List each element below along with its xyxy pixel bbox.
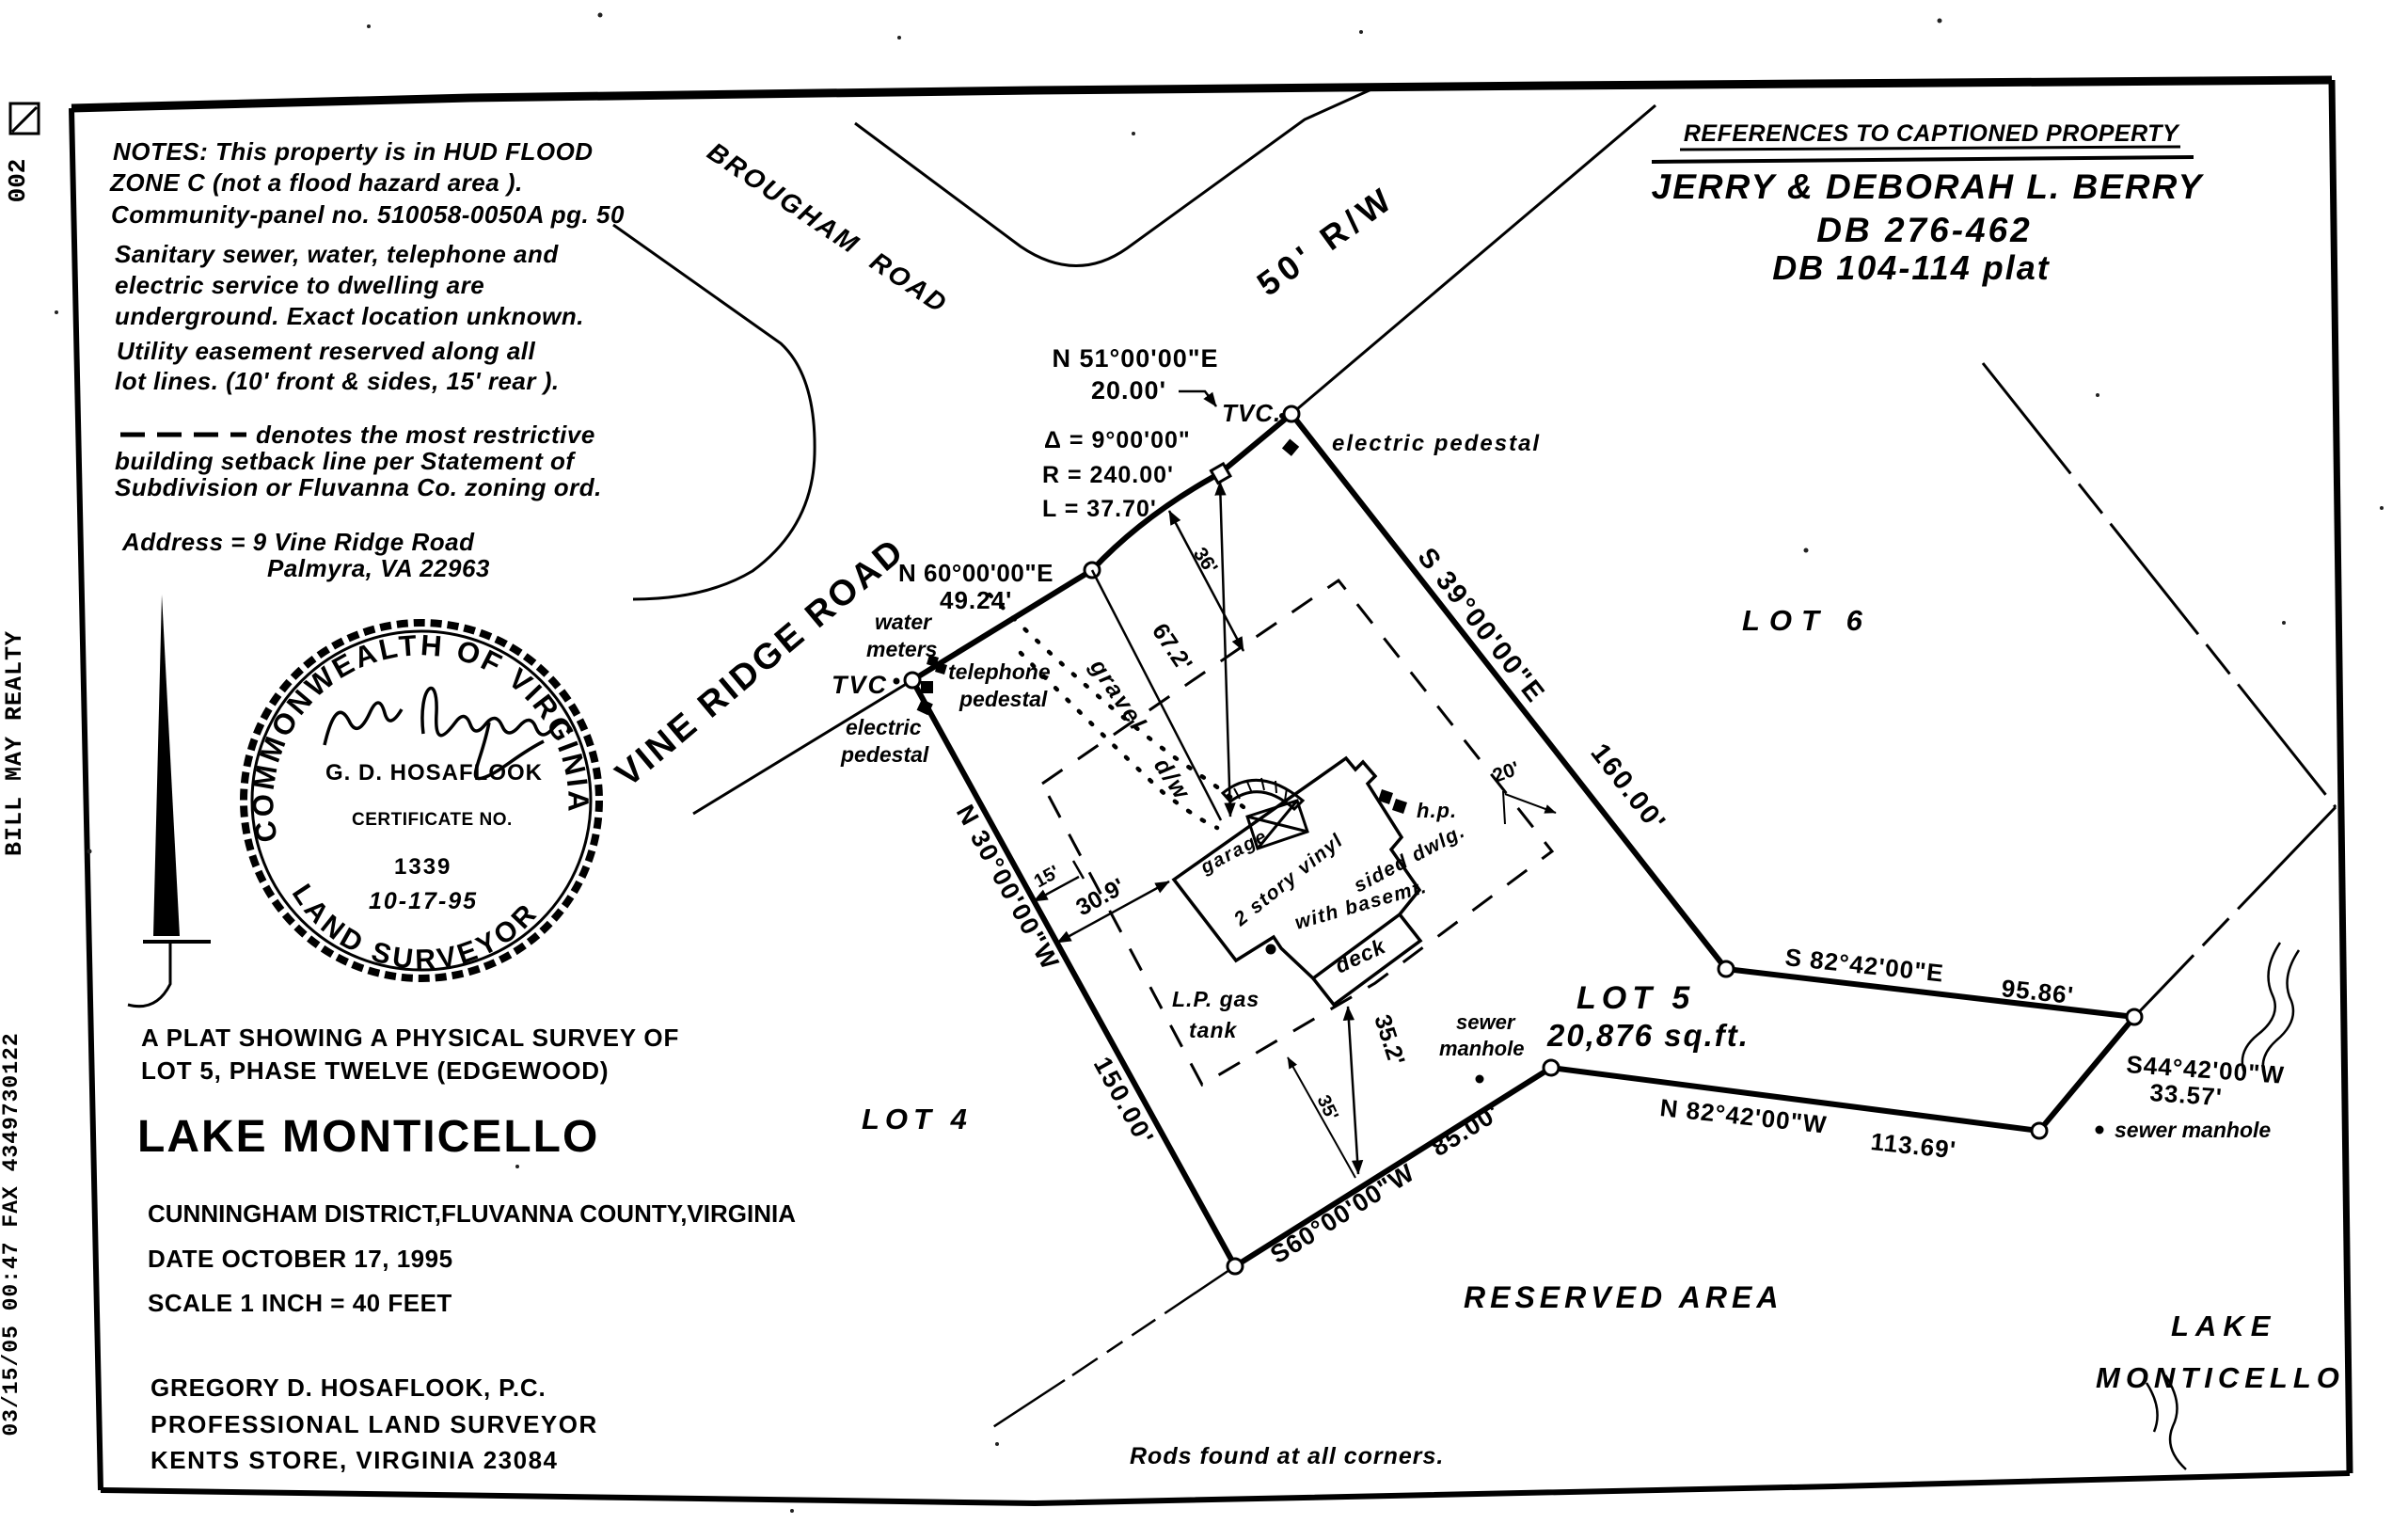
svg-text:Subdivision or Fluvanna Co. zo: Subdivision or Fluvanna Co. zoning ord. [115, 473, 602, 501]
svg-text:Utility easement reserved alon: Utility easement reserved along all [117, 337, 536, 365]
svg-text:LOT 4: LOT 4 [862, 1103, 973, 1135]
svg-text:03/15/05 00:47 FAX 4349730122: 03/15/05 00:47 FAX 4349730122 [0, 1032, 24, 1436]
svg-text:denotes the most restrictive: denotes the most restrictive [256, 421, 595, 449]
svg-text:NOTES: This property is in HUD: NOTES: This property is in HUD FLOOD [113, 137, 594, 166]
svg-text:LOT 5, PHASE TWELVE (EDGEWOOD): LOT 5, PHASE TWELVE (EDGEWOOD) [141, 1056, 609, 1085]
svg-text:R = 240.00': R = 240.00' [1042, 462, 1174, 488]
svg-text:A PLAT SHOWING A PHYSICAL SURV: A PLAT SHOWING A PHYSICAL SURVEY OF [141, 1024, 679, 1052]
svg-text:Palmyra, VA 22963: Palmyra, VA 22963 [267, 554, 490, 582]
svg-text:1339: 1339 [394, 854, 451, 880]
svg-text:Community-panel no. 510058-005: Community-panel no. 510058-0050A pg. 50 [111, 200, 625, 229]
svg-text:LAKE MONTICELLO: LAKE MONTICELLO [137, 1112, 599, 1162]
svg-text:tank: tank [1189, 1018, 1238, 1042]
svg-text:manhole: manhole [1439, 1037, 1524, 1060]
svg-text:KENTS STORE, VIRGINIA 23084: KENTS STORE, VIRGINIA 23084 [150, 1446, 559, 1474]
svg-text:LAKE: LAKE [2171, 1310, 2276, 1342]
svg-text:TVC: TVC [832, 671, 888, 699]
svg-text:PROFESSIONAL LAND SURVEYOR: PROFESSIONAL LAND SURVEYOR [150, 1410, 598, 1438]
svg-text:BILL MAY REALTY: BILL MAY REALTY [1, 630, 28, 856]
svg-text:LOT 6: LOT 6 [1742, 604, 1872, 637]
svg-text:electric: electric [846, 715, 922, 739]
svg-text:N 51°00'00"E: N 51°00'00"E [1052, 344, 1218, 373]
svg-text:JERRY & DEBORAH L. BERRY: JERRY & DEBORAH L. BERRY [1652, 167, 2205, 206]
svg-text:Rods found at all corners: Rods found at all corners. [1130, 1443, 1444, 1469]
svg-text:building setback line per Stat: building setback line per Statement of [115, 447, 576, 475]
svg-text:SCALE 1 INCH = 40 FEET: SCALE 1 INCH = 40 FEET [148, 1289, 452, 1317]
svg-text:002: 002 [4, 159, 32, 203]
svg-text:Δ = 9°00'00": Δ = 9°00'00" [1044, 427, 1191, 453]
svg-text:TVC.: TVC. [1222, 399, 1281, 427]
svg-text:pedestal: pedestal [840, 742, 929, 767]
svg-text:MONTICELLO: MONTICELLO [2096, 1361, 2345, 1394]
svg-text:49.24': 49.24' [940, 586, 1012, 614]
svg-text:20,876 sq.ft.: 20,876 sq.ft. [1546, 1018, 1750, 1053]
svg-text:Address = 9 Vine Ridge Road: Address = 9 Vine Ridge Road [121, 528, 475, 556]
svg-text:REFERENCES TO CAPTIONED PROPER: REFERENCES TO CAPTIONED PROPERTY [1684, 120, 2180, 147]
svg-text:pedestal: pedestal [958, 687, 1048, 711]
svg-text:20.00': 20.00' [1091, 376, 1166, 405]
svg-text:DB 276-462: DB 276-462 [1816, 211, 2033, 249]
svg-text:N 60°00'00"E: N 60°00'00"E [898, 559, 1053, 587]
svg-text:sewer: sewer [1456, 1010, 1516, 1034]
svg-text:LOT 5: LOT 5 [1576, 980, 1695, 1016]
svg-text:CUNNINGHAM DISTRICT,FLUVANNA C: CUNNINGHAM DISTRICT,FLUVANNA COUNTY,VIRG… [148, 1199, 796, 1228]
svg-text:Sanitary sewer, water, telepho: Sanitary sewer, water, telephone and [115, 240, 559, 268]
svg-text:electric service to dwelling a: electric service to dwelling are [115, 271, 484, 299]
svg-text:underground. Exact location un: underground. Exact location unknown. [115, 302, 584, 330]
svg-text:DB 104-114 plat: DB 104-114 plat [1772, 248, 2050, 287]
svg-text:RESERVED AREA: RESERVED AREA [1464, 1280, 1782, 1314]
svg-text:L.P. gas: L.P. gas [1172, 987, 1259, 1011]
svg-text:lot lines. (10' front & sides,: lot lines. (10' front & sides, 15' rear … [115, 367, 560, 395]
svg-text:10-17-95: 10-17-95 [369, 888, 478, 914]
svg-text:electric pedestal: electric pedestal [1332, 431, 1541, 456]
svg-text:L = 37.70': L = 37.70' [1042, 496, 1157, 522]
svg-text:water: water [875, 610, 932, 634]
svg-text:33.57': 33.57' [2149, 1078, 2224, 1111]
svg-text:ZONE C (not a flood hazard are: ZONE C (not a flood hazard area ). [109, 168, 523, 197]
svg-text:meters: meters [866, 637, 937, 661]
svg-text:telephone: telephone [948, 659, 1051, 684]
svg-text:sewer manhole: sewer manhole [2115, 1118, 2271, 1142]
svg-text:DATE OCTOBER 17, 1995: DATE OCTOBER 17, 1995 [148, 1245, 453, 1273]
svg-text:h.p.: h.p. [1417, 799, 1457, 822]
svg-text:GREGORY D. HOSAFLOOK, P.C.: GREGORY D. HOSAFLOOK, P.C. [150, 1373, 547, 1402]
svg-text:G. D. HOSAFLOOK: G. D. HOSAFLOOK [325, 760, 543, 786]
svg-text:CERTIFICATE NO.: CERTIFICATE NO. [352, 810, 513, 830]
